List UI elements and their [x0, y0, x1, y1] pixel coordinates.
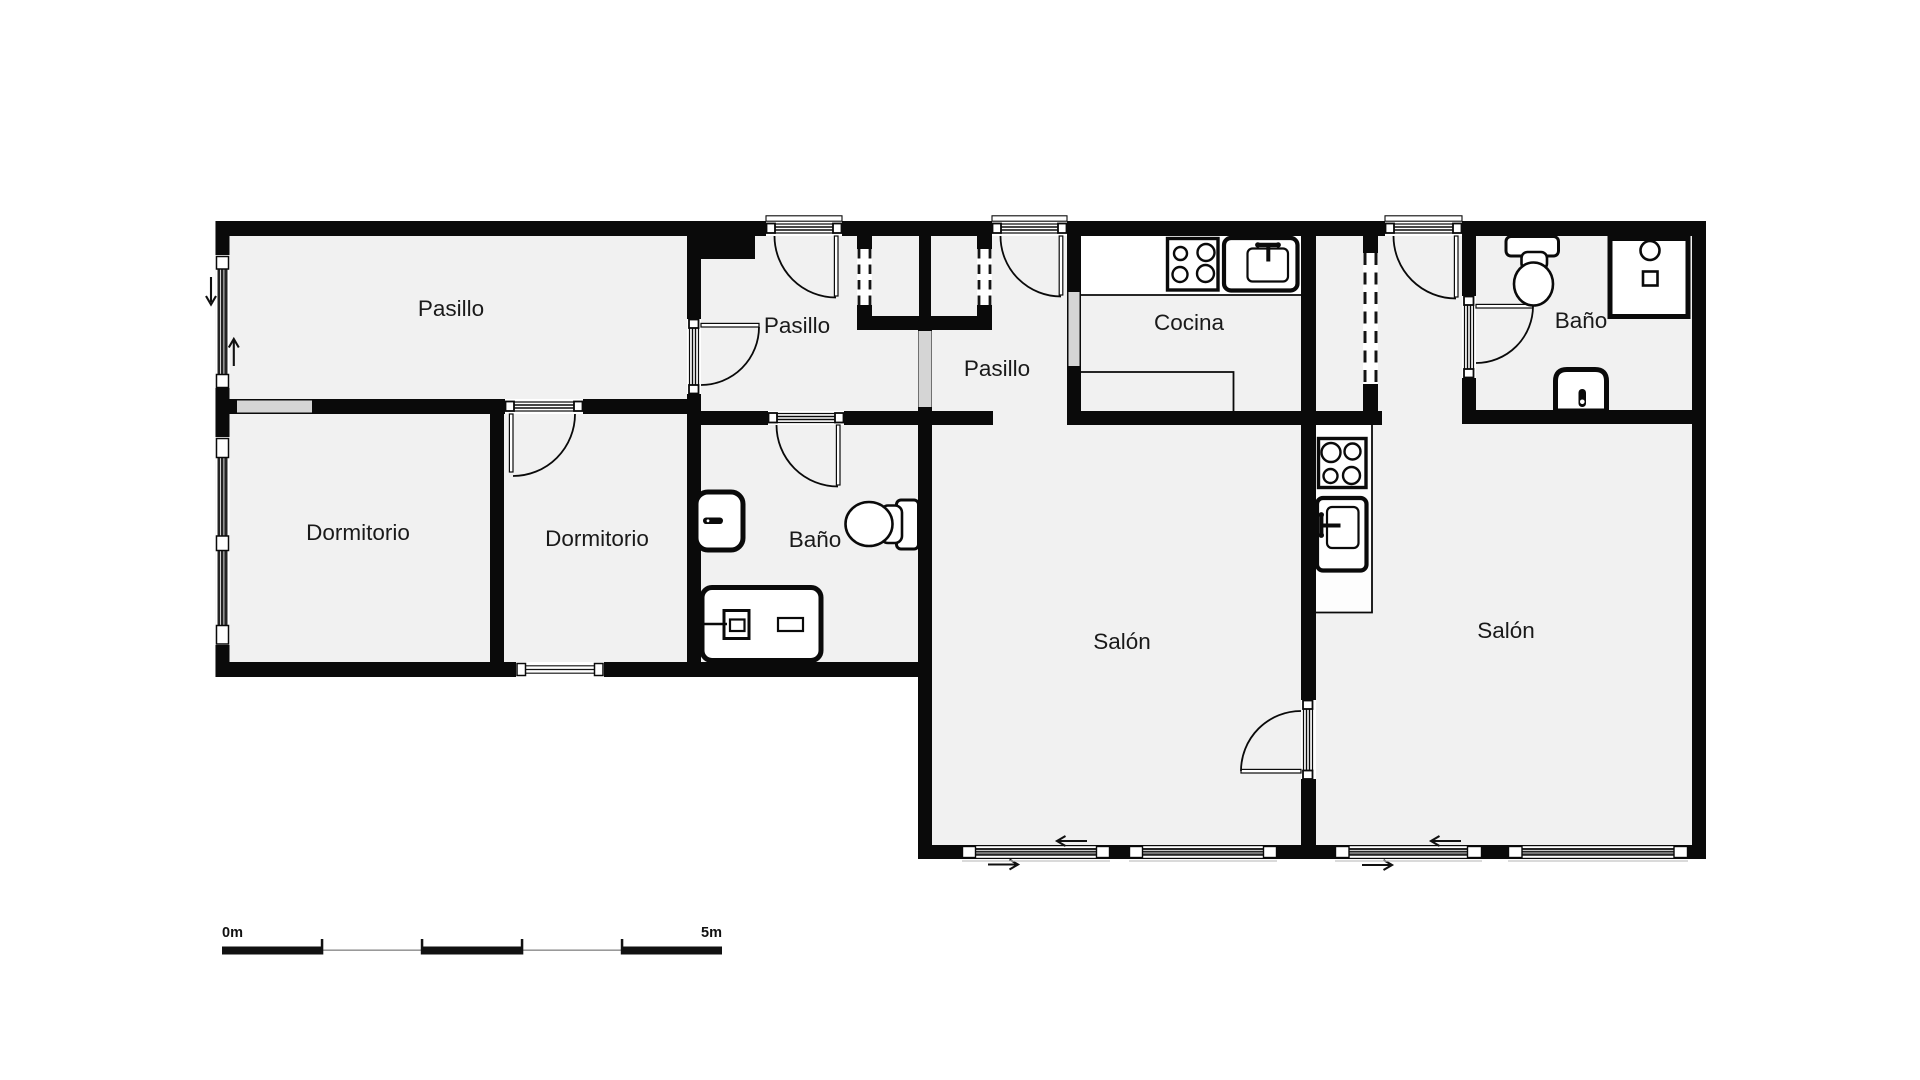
svg-text:Salón: Salón: [1093, 629, 1151, 654]
svg-text:5m: 5m: [701, 925, 722, 941]
svg-text:Baño: Baño: [789, 527, 842, 552]
svg-text:Baño: Baño: [1555, 308, 1608, 333]
svg-text:Pasillo: Pasillo: [418, 296, 484, 321]
svg-text:Pasillo: Pasillo: [764, 313, 830, 338]
svg-text:0m: 0m: [222, 925, 243, 941]
svg-text:Salón: Salón: [1477, 618, 1535, 643]
svg-text:Dormitorio: Dormitorio: [545, 526, 649, 551]
svg-text:Cocina: Cocina: [1154, 310, 1225, 335]
svg-text:Pasillo: Pasillo: [964, 356, 1030, 381]
svg-text:Dormitorio: Dormitorio: [306, 520, 410, 545]
